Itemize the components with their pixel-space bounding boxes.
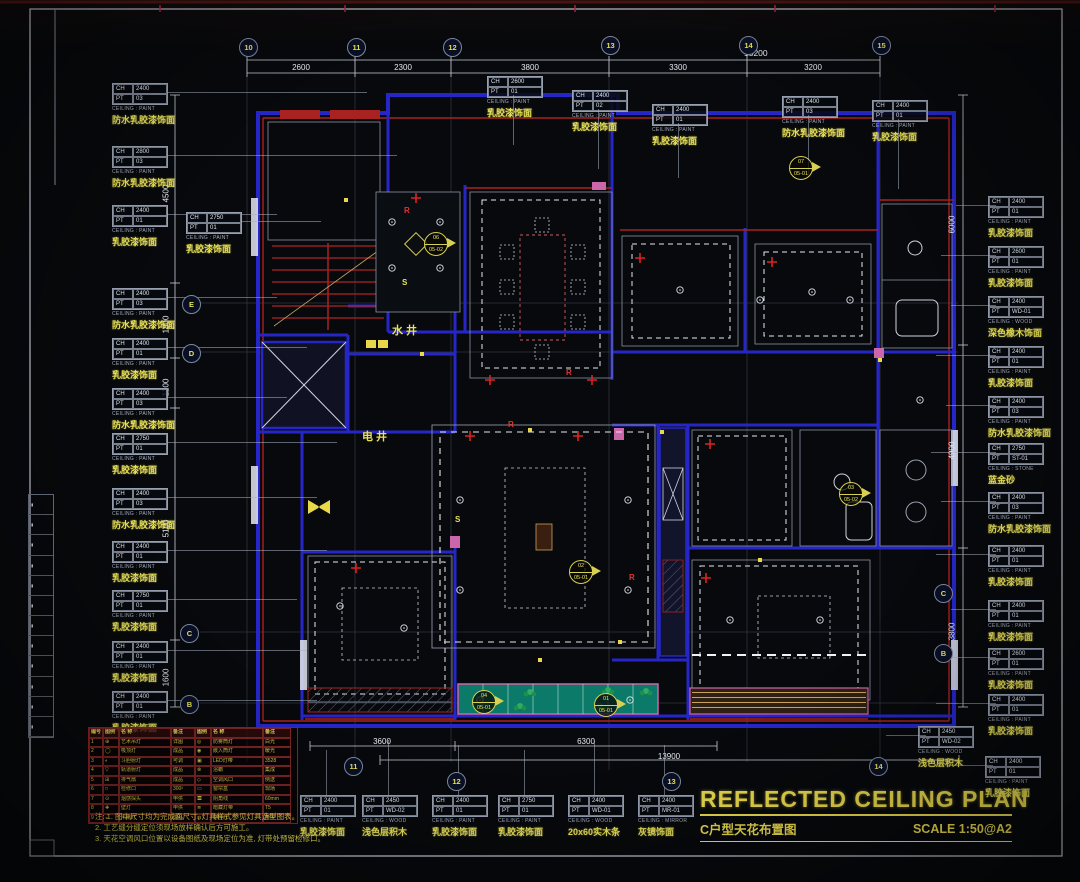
ch-value: 2400 [589,796,623,806]
legend-row: 4▽轨道射灯 成品⊗浴霸 集成 [89,766,297,776]
pt-value: 01 [133,601,167,611]
ceiling-material: 浅色层积木 [362,825,426,838]
ceiling-type: CEILING : PAINT [112,511,176,517]
ceiling-callout: CH2400 PTWD-01 CEILING : WOOD 20x60实木条 [568,795,632,838]
ch-key: CH [113,542,133,552]
pt-key: PT [989,705,1009,715]
ch-key: CH [433,796,453,806]
dimension-label: 3300 [669,63,687,72]
pt-key: PT [113,499,133,509]
ch-key: CH [363,796,383,806]
pt-value: 03 [133,299,167,309]
ch-value: 2400 [1009,347,1043,357]
pt-value: 03 [133,499,167,509]
pt-value: 03 [1009,407,1043,417]
pt-key: PT [919,737,939,747]
grid-bubble: 12 [447,772,466,791]
room-label: R [404,206,410,215]
dimension-label: 2600 [292,63,310,72]
walls [251,95,958,726]
edge-table-row: ▮ [29,717,53,737]
ceiling-material: 乳胶漆饰面 [112,620,176,633]
ceiling-material: 乳胶漆饰面 [498,825,562,838]
pt-key: PT [873,111,893,121]
section-marker: 0305-02 [839,482,863,506]
ceiling-type: CEILING : WOOD [988,319,1052,325]
grid-bubble: D [182,344,201,363]
ch-value: 2400 [133,289,167,299]
pt-key: PT [113,702,133,712]
leader-line [167,599,297,600]
leader-line [898,119,899,189]
ceiling-material: 乳胶漆饰面 [112,368,176,381]
ch-value: 2400 [133,542,167,552]
ch-key: CH [653,105,673,115]
leader-line [951,305,996,306]
ch-key: CH [783,97,803,107]
ceiling-callout: CH2600 PT01 CEILING : PAINT 乳胶漆饰面 [988,648,1052,691]
pt-key: PT [499,806,519,816]
ch-pt-box: CH2400 PT03 [112,288,168,310]
leader-line [167,650,307,651]
ceiling-material: 防水乳胶漆饰面 [112,176,176,189]
room-label: R [566,368,572,377]
ceiling-callout: CH2400 PT03 CEILING : PAINT 防水乳胶漆饰面 [988,492,1052,535]
pt-key: PT [989,611,1009,621]
ch-pt-box: CH2450 PTWD-02 [362,795,418,817]
ch-pt-box: CH2750 PT01 [112,433,168,455]
ceiling-type: CEILING : PAINT [112,613,176,619]
ch-value: 2400 [673,105,707,115]
leader-line [948,765,993,766]
ch-pt-box: CH2400 PT03 [988,396,1044,418]
pt-value: WD-01 [589,806,623,816]
pt-value: 01 [453,806,487,816]
ceiling-type: CEILING : PAINT [112,714,176,720]
ceiling-callout: CH2800 PT03 CEILING : PAINT 防水乳胶漆饰面 [112,146,176,189]
ceiling-callout: CH2400 PT01 CEILING : PAINT 乳胶漆饰面 [988,545,1052,588]
dimension-label: 13900 [658,752,680,761]
ceiling-callout: CH2400 PT03 CEILING : PAINT 防水乳胶漆饰面 [112,488,176,531]
ceiling-material: 乳胶漆饰面 [988,724,1052,737]
pt-value: 01 [133,444,167,454]
ceiling-callout: CH2400 PT03 CEILING : PAINT 防水乳胶漆饰面 [782,96,846,139]
legend-table: 编号图例 名 称备注 图例名 称 备注 1⊕艺术吊灯 详图◎防雾筒灯 白光 2◯… [88,727,298,824]
ceiling-type: CEILING : PAINT [112,169,176,175]
section-marker: 0405-01 [472,690,496,714]
pt-value: 01 [1009,257,1043,267]
ceiling-type: CEILING : PAINT [652,127,716,133]
ch-value: 2750 [207,213,241,223]
ch-key: CH [113,642,133,652]
section-marker: 0605-02 [424,232,448,256]
note-line: 注: 1. 图中尺寸均为完成面尺寸, 灯具样式参见灯具选型图表。 [95,811,325,822]
ceiling-callout: CH2400 PT01 CEILING : PAINT 乳胶漆饰面 [112,541,176,584]
room-label: R [629,573,635,582]
ceiling-type: CEILING : PAINT [432,818,496,824]
edge-table-row: ▮ [29,535,53,555]
ceiling-callout: CH2400 PT01 CEILING : PAINT 乳胶漆饰面 [112,205,176,248]
ch-pt-box: CH2400 PTWD-01 [568,795,624,817]
pt-value: 03 [133,399,167,409]
ch-value: 2400 [133,206,167,216]
edge-table-row: ▮ [29,656,53,676]
ceiling-material: 防水乳胶漆饰面 [988,522,1052,535]
ceiling-callout: CH2750 PT01 CEILING : PAINT 乳胶漆饰面 [498,795,562,838]
leader-line [167,155,397,156]
ch-value: 2450 [383,796,417,806]
ch-pt-box: CH2400 PT01 [988,600,1044,622]
edge-table-row: ▮ [29,515,53,535]
ceiling-callout: CH2400 PT03 CEILING : PAINT 防水乳胶漆饰面 [112,288,176,331]
ch-pt-box: CH2600 PT01 [988,246,1044,268]
ceiling-type: CEILING : PAINT [112,228,176,234]
ch-pt-box: CH2400 PT01 [872,100,928,122]
pt-key: PT [989,503,1009,513]
ceiling-callout: CH2750 PT01 CEILING : PAINT 乳胶漆饰面 [186,212,250,255]
ch-value: 2400 [893,101,927,111]
ceiling-material: 浅色层积木 [918,756,982,769]
dimension-label: 6000 [948,205,957,245]
sheet-edge-table: ▮▮▮▮▮▮▮▮▮▮▮▮ [28,494,54,738]
room-label: S [455,515,460,524]
leader-line [936,703,996,704]
ch-pt-box: CH2400 PT01 [988,196,1044,218]
pt-key: PT [113,601,133,611]
pt-key: PT [113,349,133,359]
edge-table-row: ▮ [29,616,53,636]
pt-value: 01 [321,806,355,816]
room-label: 水井 [392,322,420,338]
pt-value: WD-02 [383,806,417,816]
ch-key: CH [873,101,893,111]
ceiling-callout: CH2600 PT01 CEILING : PAINT 乳胶漆饰面 [487,76,551,119]
ch-pt-box: CH2400 PT01 [988,694,1044,716]
leader-line [931,452,996,453]
ch-key: CH [187,213,207,223]
balcony-hatched [308,688,452,712]
ch-pt-box: CH2400 PT01 [112,338,168,360]
room-label: R [508,420,514,429]
ch-value: 2400 [133,389,167,399]
ch-pt-box: CH2400 PTWD-01 [988,296,1044,318]
ceiling-type: CEILING : PAINT [112,564,176,570]
ch-key: CH [113,591,133,601]
ceiling-material: 乳胶漆饰面 [872,130,936,143]
title-block: REFLECTED CEILING PLAN C户型天花布置图 SCALE 1:… [700,786,1012,842]
leader-line [956,205,996,206]
ch-pt-box: CH2750 PT01 [112,590,168,612]
ch-pt-box: CH2400 PT01 [988,545,1044,567]
ch-key: CH [113,84,133,94]
pt-key: PT [989,357,1009,367]
ch-value: 2400 [803,97,837,107]
legend-row: 3◐斗胆射灯 可调▣LED灯带 3528 [89,757,297,767]
ceiling-material: 乳胶漆饰面 [988,376,1052,389]
pt-key: PT [989,307,1009,317]
pt-value: 03 [133,157,167,167]
ch-value: 2400 [1006,757,1040,767]
ch-pt-box: CH2400 PT01 [432,795,488,817]
ceiling-type: CEILING : PAINT [988,717,1052,723]
ceiling-type: CEILING : PAINT [988,515,1052,521]
drawing-title-cn: C户型天花布置图 [700,819,797,838]
ceiling-type: CEILING : PAINT [186,235,250,241]
pt-value: 01 [133,216,167,226]
grid-bubble: 10 [239,38,258,57]
pt-value: 03 [1009,503,1043,513]
edge-table-row: ▮ [29,636,53,656]
ceiling-callout: CH2750 PT01 CEILING : PAINT 乳胶漆饰面 [112,433,176,476]
pt-key: PT [433,806,453,816]
ceiling-type: CEILING : PAINT [988,568,1052,574]
ceiling-type: CEILING : PAINT [572,113,636,119]
dimension-label: 3200 [804,63,822,72]
pt-value: 01 [1009,611,1043,621]
ch-pt-box: CH2750 PTST-01 [988,443,1044,465]
pt-key: PT [113,652,133,662]
bedroom-bottom-right [692,560,870,700]
pt-key: PT [113,299,133,309]
leader-line [598,109,599,169]
pt-key: PT [187,223,207,233]
note-line: 3. 天花空调风口位置以设备图纸及现场定位为准, 灯带处预留检修口。 [95,833,325,844]
ceiling-type: CEILING : WOOD [568,818,632,824]
ch-pt-box: CH2400 PT01 [112,691,168,713]
ceiling-callout: CH2600 PT01 CEILING : PAINT 乳胶漆饰面 [988,246,1052,289]
leader-line [326,750,327,795]
ch-value: 2400 [659,796,693,806]
ch-key: CH [113,489,133,499]
ch-value: 2400 [1009,546,1043,556]
ceiling-type: CEILING : PAINT [498,818,562,824]
ch-key: CH [569,796,589,806]
ch-pt-box: CH2800 PT03 [112,146,168,168]
ch-pt-box: CH2400 PT01 [112,205,168,227]
grid-bubble: 14 [739,36,758,55]
leader-line [241,221,321,222]
ch-key: CH [113,692,133,702]
leader-line [167,397,287,398]
pt-value: 01 [1009,659,1043,669]
ceiling-type: CEILING : MIRROR [638,818,702,824]
grid-bubble: 14 [869,757,888,776]
ceiling-callout: CH2400 PT01 CEILING : PAINT 乳胶漆饰面 [432,795,496,838]
pt-value: 01 [133,552,167,562]
ceiling-type: CEILING : PAINT [112,664,176,670]
ch-value: 2800 [133,147,167,157]
ceiling-callout: CH2400 PT03 CEILING : PAINT 防水乳胶漆饰面 [112,83,176,126]
pt-key: PT [989,407,1009,417]
leader-line [594,740,595,795]
legend-row: 7⊙烟感探头 甲供〓阴角线 60mm [89,795,297,805]
pt-key: PT [989,257,1009,267]
ceiling-callout: CH2400 PT01 CEILING : PAINT 乳胶漆饰面 [112,338,176,381]
pt-key: PT [783,107,803,117]
grid-bubble: 11 [347,38,366,57]
leader-line [951,609,996,610]
grid-bubble: C [934,584,953,603]
ch-pt-box: CH2600 PT01 [988,648,1044,670]
ceiling-type: CEILING : PAINT [988,219,1052,225]
pt-key: PT [113,216,133,226]
ceiling-material: 乳胶漆饰面 [112,235,176,248]
ch-value: 2750 [133,591,167,601]
ceiling-material: 乳胶漆饰面 [112,671,176,684]
ch-pt-box: CH2750 PT01 [498,795,554,817]
ch-pt-box: CH2400 PT03 [112,388,168,410]
ceiling-material: 防水乳胶漆饰面 [112,518,176,531]
room-label: 电井 [362,428,390,444]
leader-line [941,255,996,256]
legend-row: 2◯吸顶灯 成品◉嵌入筒灯 暖光 [89,747,297,757]
pt-value: 01 [1009,556,1043,566]
grid-bubble: B [180,695,199,714]
ceiling-type: CEILING : PAINT [985,779,1049,785]
ch-pt-box: CH2400 PT01 [988,346,1044,368]
legend-row: 1⊕艺术吊灯 详图◎防雾筒灯 白光 [89,738,297,748]
ch-key: CH [301,796,321,806]
ceiling-material: 乳胶漆饰面 [988,630,1052,643]
pt-key: PT [113,399,133,409]
ch-key: CH [113,289,133,299]
pt-value: WD-01 [1009,307,1043,317]
ch-value: 2400 [321,796,355,806]
ch-value: 2750 [1009,444,1043,454]
ch-key: CH [113,339,133,349]
ch-value: 2600 [1009,649,1043,659]
pt-value: 01 [519,806,553,816]
ceiling-callout: CH2450 PTWD-02 CEILING : WOOD 浅色层积木 [918,726,982,769]
ceiling-material: 乳胶漆饰面 [572,120,636,133]
ceiling-material: 乳胶漆饰面 [988,575,1052,588]
ceiling-type: CEILING : PAINT [782,119,846,125]
pt-value: ST-01 [1009,454,1043,464]
ceiling-plan-sheet: CH2400 PT03 CEILING : PAINT 防水乳胶漆饰面 CH28… [0,0,1080,882]
ch-pt-box: CH2400 PT03 [782,96,838,118]
grid-bubble: C [180,624,199,643]
ceiling-callout: CH2400 PTWD-01 CEILING : WOOD 深色橡木饰面 [988,296,1052,339]
ch-value: 2400 [1009,601,1043,611]
ceiling-type: CEILING : WOOD [918,749,982,755]
ch-value: 2450 [939,727,973,737]
ch-pt-box: CH2400 PT03 [112,488,168,510]
ceiling-type: CEILING : PAINT [112,361,176,367]
leader-line [167,497,317,498]
edge-table-row: ▮ [29,576,53,596]
ceiling-material: 防水乳胶漆饰面 [988,426,1052,439]
ceiling-material: 乳胶漆饰面 [432,825,496,838]
ch-key: CH [113,389,133,399]
ch-value: 2750 [133,434,167,444]
ceiling-callout: CH2750 PTST-01 CEILING : STONE 蓝金砂 [988,443,1052,486]
ceiling-material: 乳胶漆饰面 [988,276,1052,289]
pt-value: 01 [1009,207,1043,217]
grid-bubble: 13 [601,36,620,55]
grid-bubble: 12 [443,38,462,57]
edge-table-row: ▮ [29,677,53,697]
grid-bubble: 13 [662,772,681,791]
ch-key: CH [639,796,659,806]
ceiling-material: 防水乳胶漆饰面 [782,126,846,139]
pt-value: 03 [133,94,167,104]
pt-value: 01 [133,349,167,359]
ch-key: CH [488,77,508,87]
section-marker: 0105-01 [594,693,618,717]
ceiling-type: CEILING : PAINT [988,671,1052,677]
ceiling-material: 深色橡木饰面 [988,326,1052,339]
general-notes: 注: 1. 图中尺寸均为完成面尺寸, 灯具样式参见灯具选型图表。2. 工艺缝分缝… [95,811,325,844]
pt-value: 01 [207,223,241,233]
leader-line [388,740,389,795]
ceiling-type: CEILING : PAINT [112,411,176,417]
ceiling-callout: CH2400 PT01 CEILING : PAINT 乳胶漆饰面 [872,100,936,143]
ch-value: 2600 [508,77,542,87]
legend-row: 6□检修口 300²▭窗帘盒 现场 [89,785,297,795]
leader-line [678,123,679,178]
ceiling-type: CEILING : PAINT [112,106,176,112]
ceiling-type: CEILING : STONE [988,466,1052,472]
pt-value: MR-01 [659,806,693,816]
ceiling-callout: CH2400 PT03 CEILING : PAINT 防水乳胶漆饰面 [112,388,176,431]
ch-value: 2400 [1009,397,1043,407]
edge-table-row: ▮ [29,596,53,616]
ceiling-callout: CH2450 PTWD-02 CEILING : WOOD 浅色层积木 [362,795,426,838]
ceiling-material: 防水乳胶漆饰面 [112,418,176,431]
leader-line [167,550,327,551]
living-room [432,425,655,648]
pt-key: PT [986,767,1006,777]
ch-value: 2400 [133,642,167,652]
ceiling-material: 乳胶漆饰面 [988,678,1052,691]
ceiling-callout: CH2400 PT01 CEILING : PAINT 乳胶漆饰面 [988,196,1052,239]
pt-key: PT [113,444,133,454]
legend-header: 编号图例 名 称备注 图例名 称 备注 [89,728,297,738]
ch-value: 2400 [1009,695,1043,705]
ch-pt-box: CH2400 PT03 [988,492,1044,514]
ceiling-type: CEILING : PAINT [988,419,1052,425]
ceiling-material: 乳胶漆饰面 [652,134,716,147]
ch-key: CH [573,91,593,101]
pt-key: PT [113,94,133,104]
section-marker: 0205-01 [569,560,593,584]
ceiling-callout: CH2400 PT01 CEILING : PAINT 乳胶漆饰面 [988,600,1052,643]
ceiling-type: CEILING : PAINT [112,456,176,462]
grid-bubble: E [182,295,201,314]
leader-line [886,735,926,736]
ceiling-callout: CH2400 PT01 CEILING : PAINT 乳胶漆饰面 [112,641,176,684]
ceiling-type: CEILING : PAINT [988,269,1052,275]
pt-key: PT [488,87,508,97]
ch-pt-box: CH2400 PT03 [112,83,168,105]
grid-bubble: 15 [872,36,891,55]
ch-key: CH [113,434,133,444]
pt-key: PT [573,101,593,111]
pt-value: 01 [1009,705,1043,715]
dimension-label: 6300 [577,737,595,746]
ch-pt-box: CH2600 PT01 [487,76,543,98]
ceiling-callout: CH2400 PTMR-01 CEILING : MIRROR 灰镜饰面 [638,795,702,838]
pt-key: PT [569,806,589,816]
ch-value: 2400 [1009,297,1043,307]
leader-line [946,405,996,406]
leader-line [167,442,337,443]
edge-table-row: ▮ [29,495,53,515]
ch-value: 2400 [133,489,167,499]
ceiling-material: 蓝金砂 [988,473,1052,486]
ch-key: CH [499,796,519,806]
ceiling-callout: CH2400 PT03 CEILING : PAINT 防水乳胶漆饰面 [988,396,1052,439]
